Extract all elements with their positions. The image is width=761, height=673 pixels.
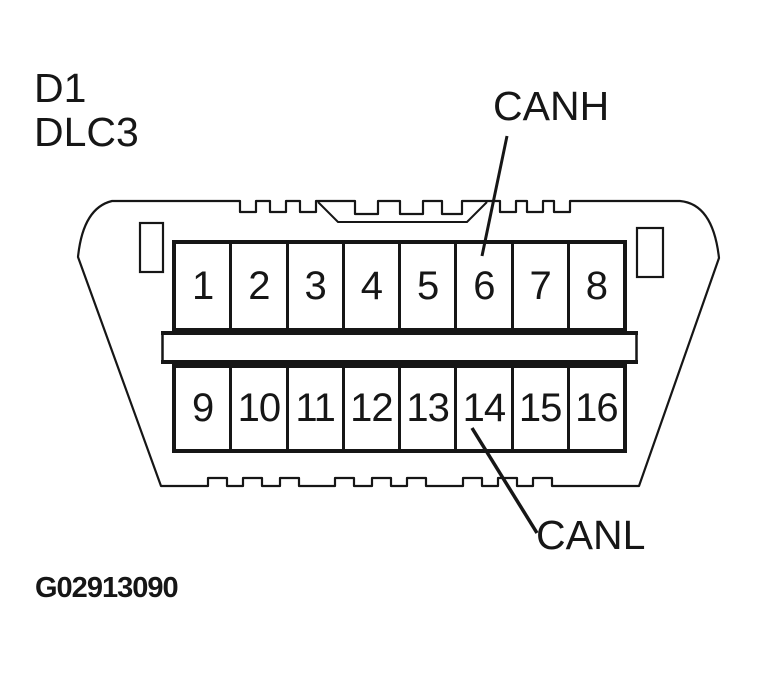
- pin-cell-15: 15: [511, 368, 567, 449]
- pin-cell-2: 2: [229, 244, 285, 328]
- diagram-id-label: D1 DLC3: [34, 66, 139, 154]
- mounting-slot-right: [637, 228, 663, 277]
- pin-cell-7: 7: [511, 244, 567, 328]
- pin-row-bottom: 9 10 11 12 13 14 15 16: [172, 364, 627, 453]
- canl-callout-label: CANL: [536, 515, 645, 556]
- figure-code-label: G02913090: [35, 572, 178, 605]
- diagram-id-line2: DLC3: [34, 110, 139, 154]
- mounting-slot-left: [140, 223, 163, 272]
- pin-cell-12: 12: [342, 368, 398, 449]
- pin-cell-5: 5: [398, 244, 454, 328]
- pin-row-top: 1 2 3 4 5 6 7 8: [172, 240, 627, 332]
- pin-cell-9: 9: [176, 368, 229, 449]
- pin-cell-3: 3: [286, 244, 342, 328]
- pin-cell-16: 16: [567, 368, 623, 449]
- diagram-id-line1: D1: [34, 66, 139, 110]
- pin-cell-4: 4: [342, 244, 398, 328]
- center-divider-bar: [161, 333, 638, 362]
- pin-cell-1: 1: [176, 244, 229, 328]
- pin-cell-11: 11: [286, 368, 342, 449]
- pin-cell-6: 6: [454, 244, 510, 328]
- pin-cell-14: 14: [454, 368, 510, 449]
- pin-cell-8: 8: [567, 244, 623, 328]
- pin-cell-13: 13: [398, 368, 454, 449]
- wiring-diagram-page: 1 2 3 4 5 6 7 8 9 10 11 12 13 14 15 16 D…: [0, 0, 761, 673]
- pin-cell-10: 10: [229, 368, 285, 449]
- canh-callout-label: CANH: [493, 86, 609, 127]
